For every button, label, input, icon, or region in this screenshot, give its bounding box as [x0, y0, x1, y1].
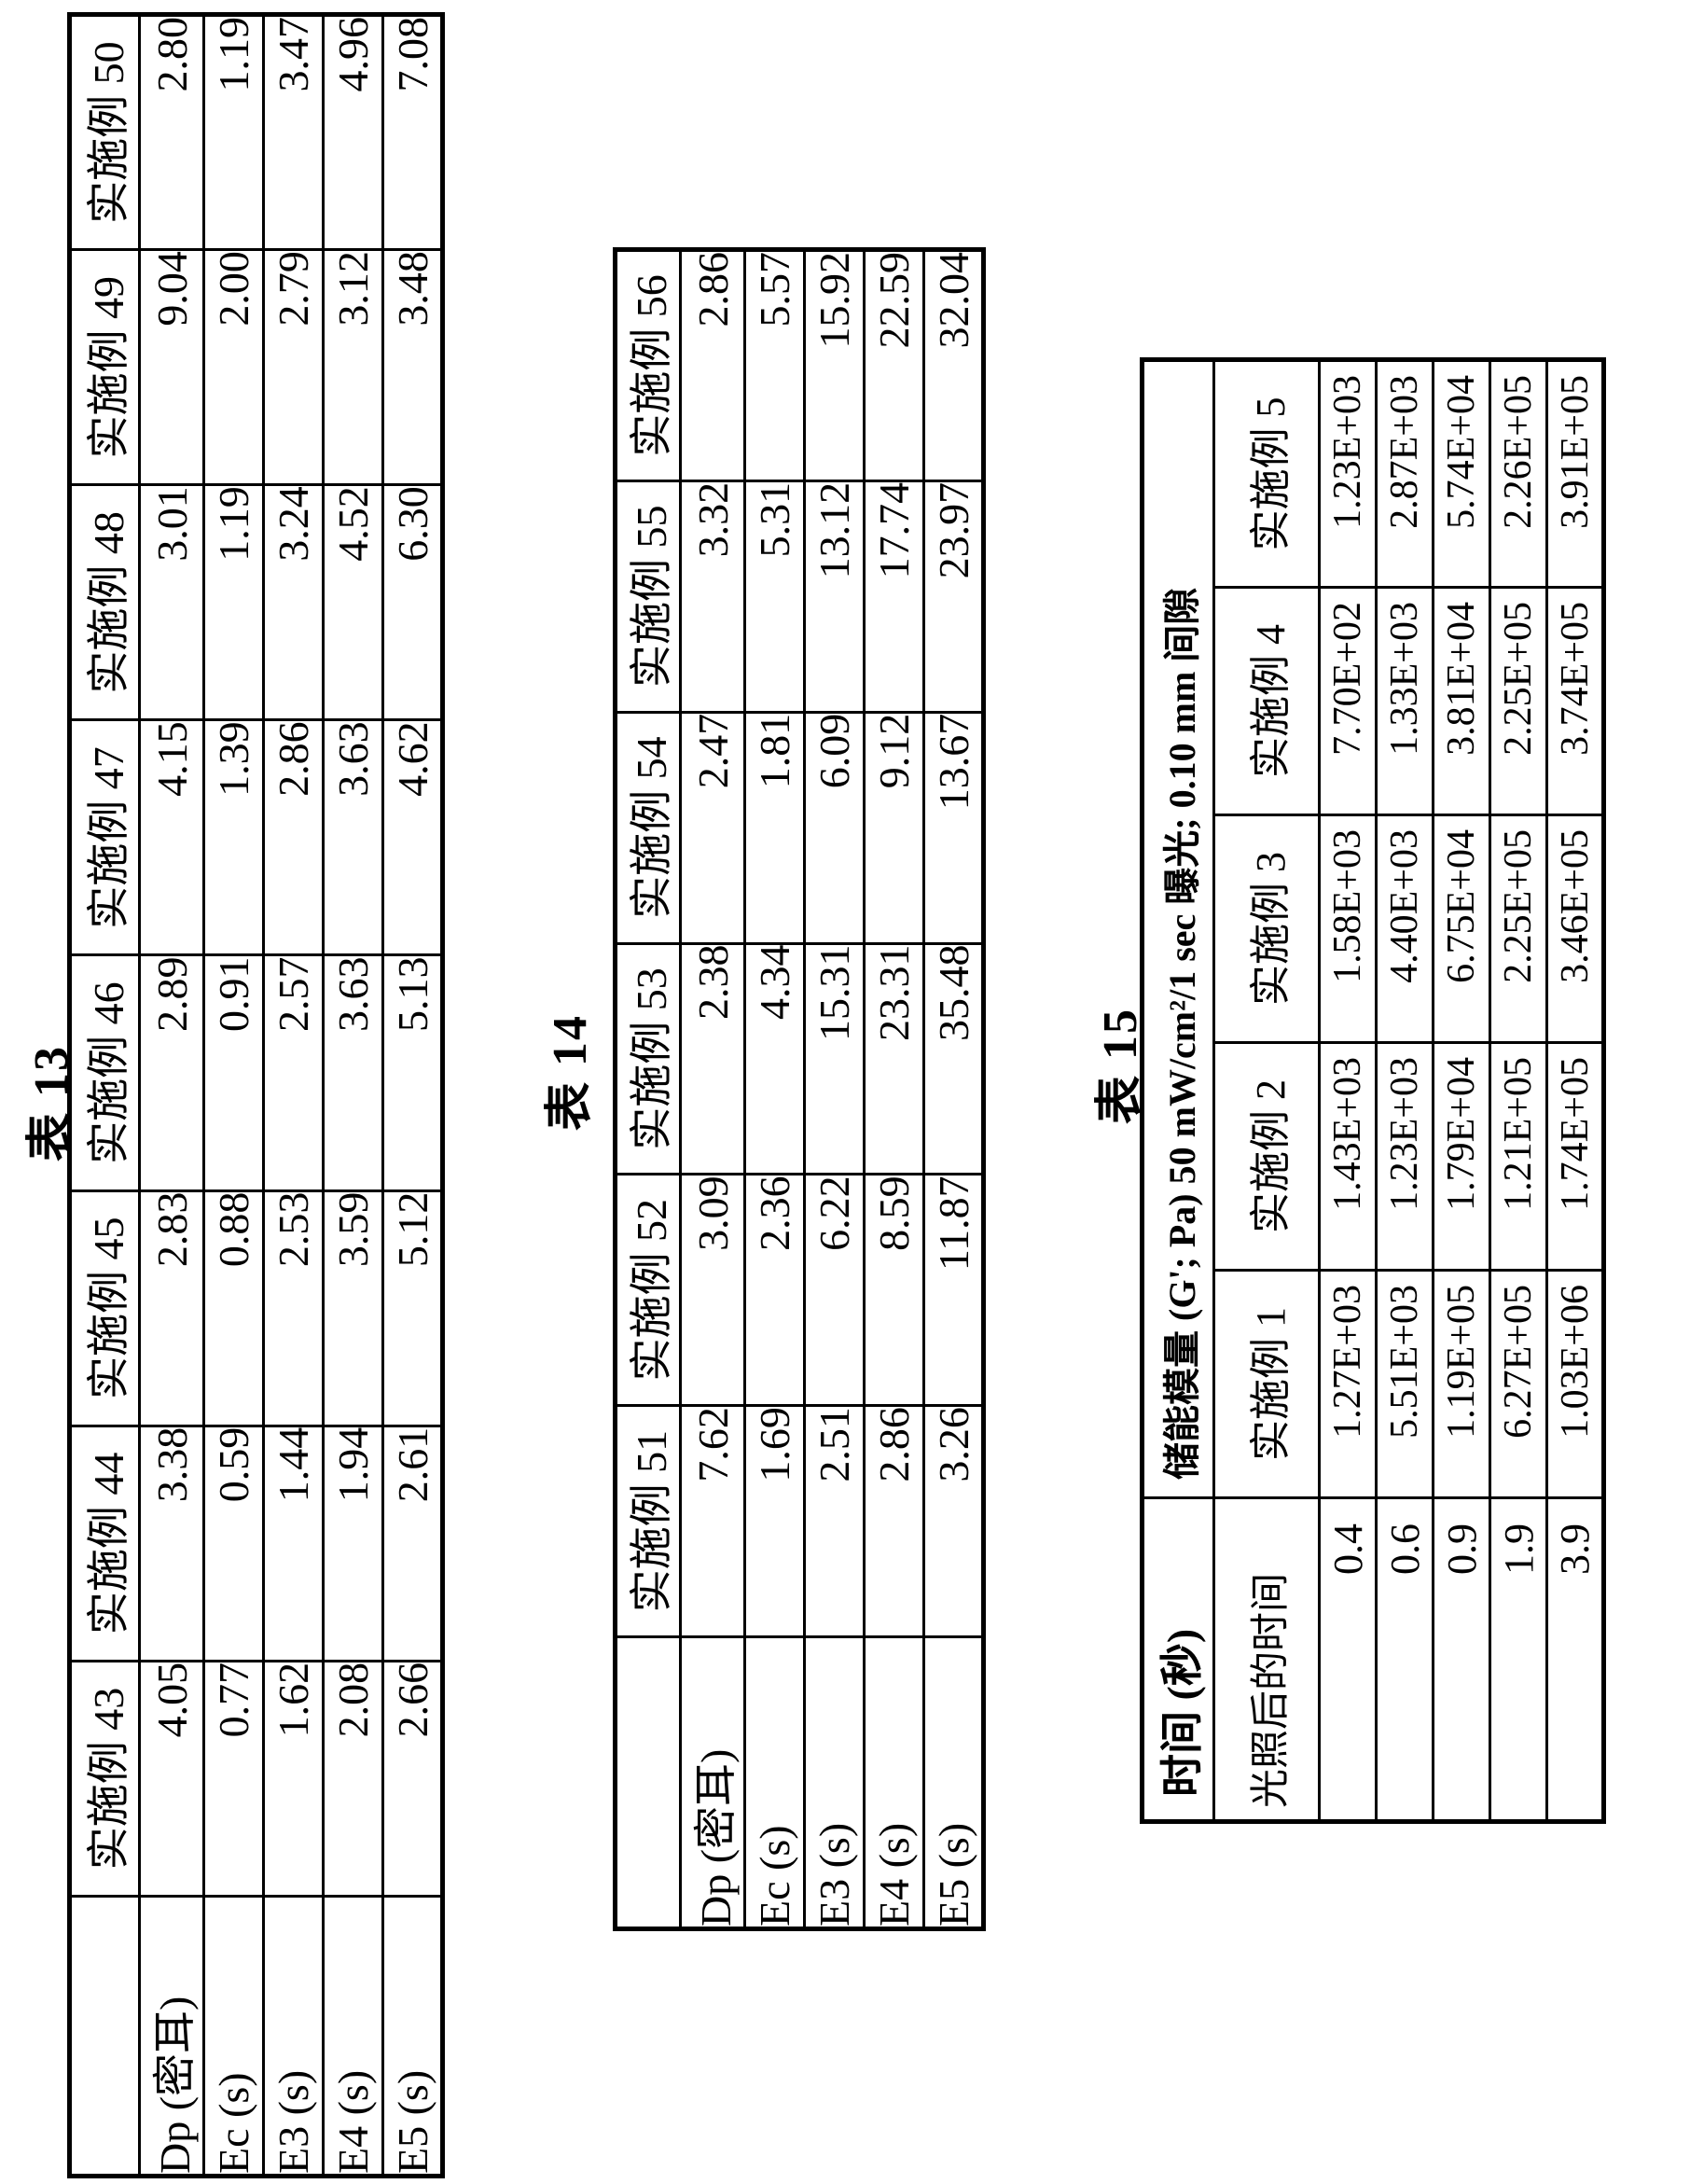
corner-cell — [70, 1897, 140, 2177]
table-15-container: 时间 (秒)储能模量 (G'; Pa) 50 mW/cm²/1 sec 曝光; … — [1140, 357, 1606, 1824]
value-cell: 0.88 — [204, 1190, 264, 1426]
column-header: 实施例 3 — [1214, 815, 1320, 1043]
corner-cell — [616, 1637, 681, 1929]
column-header: 实施例 53 — [616, 943, 681, 1175]
value-cell: 2.25E+05 — [1490, 815, 1547, 1043]
value-cell: 9.12 — [865, 712, 924, 943]
value-cell: 1.33E+03 — [1377, 588, 1434, 815]
value-cell: 3.26 — [924, 1406, 984, 1637]
value-cell: 2.36 — [745, 1175, 805, 1406]
column-header: 实施例 48 — [70, 485, 140, 720]
column-header: 实施例 54 — [616, 712, 681, 943]
value-cell: 2.57 — [264, 955, 324, 1190]
value-cell: 3.74E+05 — [1547, 588, 1604, 815]
value-cell: 23.31 — [865, 943, 924, 1175]
time-value-cell: 0.9 — [1434, 1498, 1490, 1822]
value-cell: 1.23E+03 — [1320, 360, 1377, 588]
value-cell: 2.86 — [865, 1406, 924, 1637]
value-cell: 1.19E+05 — [1434, 1271, 1490, 1498]
value-cell: 7.08 — [383, 15, 443, 250]
value-cell: 2.80 — [140, 15, 204, 250]
value-cell: 0.91 — [204, 955, 264, 1190]
value-cell: 0.77 — [204, 1661, 264, 1896]
storage-modulus-header-cell: 储能模量 (G'; Pa) 50 mW/cm²/1 sec 曝光; 0.10 m… — [1143, 360, 1214, 1498]
value-cell: 4.15 — [140, 720, 204, 955]
value-cell: 4.62 — [383, 720, 443, 955]
value-cell: 1.23E+03 — [1377, 1043, 1434, 1271]
value-cell: 1.58E+03 — [1320, 815, 1377, 1043]
column-header: 实施例 50 — [70, 15, 140, 250]
value-cell: 6.27E+05 — [1490, 1271, 1547, 1498]
value-cell: 6.22 — [805, 1175, 865, 1406]
table-14-container: 实施例 51实施例 52实施例 53实施例 54实施例 55实施例 56Dp (… — [613, 247, 986, 1931]
column-header: 实施例 47 — [70, 720, 140, 955]
value-cell: 5.31 — [745, 480, 805, 712]
value-cell: 3.01 — [140, 485, 204, 720]
row-label: E4 (s) — [324, 1897, 383, 2177]
time-value-cell: 1.9 — [1490, 1498, 1547, 1822]
value-cell: 13.67 — [924, 712, 984, 943]
column-header: 实施例 55 — [616, 480, 681, 712]
column-header: 实施例 44 — [70, 1426, 140, 1661]
row-label: Ec (s) — [745, 1637, 805, 1929]
value-cell: 32.04 — [924, 250, 984, 481]
column-header: 实施例 1 — [1214, 1271, 1320, 1498]
value-cell: 3.59 — [324, 1190, 383, 1426]
value-cell: 1.19 — [204, 15, 264, 250]
column-header: 实施例 46 — [70, 955, 140, 1190]
row-label: E5 (s) — [924, 1637, 984, 1929]
value-cell: 6.75E+04 — [1434, 815, 1490, 1043]
table-13: 实施例 43实施例 44实施例 45实施例 46实施例 47实施例 48实施例 … — [67, 12, 445, 2178]
value-cell: 3.32 — [681, 480, 745, 712]
value-cell: 4.40E+03 — [1377, 815, 1434, 1043]
value-cell: 1.94 — [324, 1426, 383, 1661]
row-label: Dp (密耳) — [681, 1637, 745, 1929]
row-label: E3 (s) — [805, 1637, 865, 1929]
value-cell: 3.48 — [383, 250, 443, 485]
value-cell: 5.12 — [383, 1190, 443, 1426]
value-cell: 23.97 — [924, 480, 984, 712]
time-value-cell: 3.9 — [1547, 1498, 1604, 1822]
value-cell: 17.74 — [865, 480, 924, 712]
value-cell: 2.53 — [264, 1190, 324, 1426]
column-header: 实施例 43 — [70, 1661, 140, 1896]
column-header: 实施例 51 — [616, 1406, 681, 1637]
value-cell: 2.00 — [204, 250, 264, 485]
column-header: 实施例 4 — [1214, 588, 1320, 815]
value-cell: 2.66 — [383, 1661, 443, 1896]
value-cell: 1.62 — [264, 1661, 324, 1896]
value-cell: 1.79E+04 — [1434, 1043, 1490, 1271]
value-cell: 2.89 — [140, 955, 204, 1190]
value-cell: 3.91E+05 — [1547, 360, 1604, 588]
value-cell: 2.26E+05 — [1490, 360, 1547, 588]
value-cell: 6.09 — [805, 712, 865, 943]
value-cell: 2.38 — [681, 943, 745, 1175]
value-cell: 4.52 — [324, 485, 383, 720]
column-header: 实施例 5 — [1214, 360, 1320, 588]
value-cell: 3.38 — [140, 1426, 204, 1661]
row-label: E5 (s) — [383, 1897, 443, 2177]
row-label: Dp (密耳) — [140, 1897, 204, 2177]
time-header-cell: 时间 (秒) — [1143, 1498, 1214, 1822]
value-cell: 1.81 — [745, 712, 805, 943]
value-cell: 2.51 — [805, 1406, 865, 1637]
value-cell: 3.46E+05 — [1547, 815, 1604, 1043]
value-cell: 1.44 — [264, 1426, 324, 1661]
value-cell: 11.87 — [924, 1175, 984, 1406]
value-cell: 3.47 — [264, 15, 324, 250]
column-header: 实施例 49 — [70, 250, 140, 485]
value-cell: 1.43E+03 — [1320, 1043, 1377, 1271]
value-cell: 2.61 — [383, 1426, 443, 1661]
value-cell: 15.92 — [805, 250, 865, 481]
value-cell: 3.24 — [264, 485, 324, 720]
value-cell: 9.04 — [140, 250, 204, 485]
value-cell: 2.86 — [681, 250, 745, 481]
value-cell: 15.31 — [805, 943, 865, 1175]
value-cell: 1.03E+06 — [1547, 1271, 1604, 1498]
value-cell: 2.08 — [324, 1661, 383, 1896]
value-cell: 1.69 — [745, 1406, 805, 1637]
value-cell: 22.59 — [865, 250, 924, 481]
value-cell: 2.83 — [140, 1190, 204, 1426]
value-cell: 1.74E+05 — [1547, 1043, 1604, 1271]
value-cell: 3.09 — [681, 1175, 745, 1406]
value-cell: 2.25E+05 — [1490, 588, 1547, 815]
sub-label-cell: 光照后的时间 — [1214, 1498, 1320, 1822]
column-header: 实施例 45 — [70, 1190, 140, 1426]
column-header: 实施例 52 — [616, 1175, 681, 1406]
column-header: 实施例 2 — [1214, 1043, 1320, 1271]
value-cell: 5.57 — [745, 250, 805, 481]
value-cell: 5.51E+03 — [1377, 1271, 1434, 1498]
value-cell: 35.48 — [924, 943, 984, 1175]
value-cell: 2.87E+03 — [1377, 360, 1434, 588]
value-cell: 1.27E+03 — [1320, 1271, 1377, 1498]
row-label: E4 (s) — [865, 1637, 924, 1929]
time-value-cell: 0.4 — [1320, 1498, 1377, 1822]
value-cell: 8.59 — [865, 1175, 924, 1406]
row-label: E3 (s) — [264, 1897, 324, 2177]
value-cell: 2.86 — [264, 720, 324, 955]
time-value-cell: 0.6 — [1377, 1498, 1434, 1822]
value-cell: 1.21E+05 — [1490, 1043, 1547, 1271]
value-cell: 7.62 — [681, 1406, 745, 1637]
value-cell: 3.63 — [324, 955, 383, 1190]
column-header: 实施例 56 — [616, 250, 681, 481]
table-13-container: 实施例 43实施例 44实施例 45实施例 46实施例 47实施例 48实施例 … — [67, 12, 445, 2178]
value-cell: 5.13 — [383, 955, 443, 1190]
table-14-caption: 表 14 — [530, 1014, 600, 1131]
row-label: Ec (s) — [204, 1897, 264, 2177]
value-cell: 6.30 — [383, 485, 443, 720]
value-cell: 1.19 — [204, 485, 264, 720]
table-14: 实施例 51实施例 52实施例 53实施例 54实施例 55实施例 56Dp (… — [613, 247, 986, 1931]
value-cell: 13.12 — [805, 480, 865, 712]
value-cell: 1.39 — [204, 720, 264, 955]
value-cell: 7.70E+02 — [1320, 588, 1377, 815]
value-cell: 3.63 — [324, 720, 383, 955]
value-cell: 0.59 — [204, 1426, 264, 1661]
value-cell: 3.81E+04 — [1434, 588, 1490, 815]
table-15: 时间 (秒)储能模量 (G'; Pa) 50 mW/cm²/1 sec 曝光; … — [1140, 357, 1606, 1824]
value-cell: 2.79 — [264, 250, 324, 485]
value-cell: 4.05 — [140, 1661, 204, 1896]
value-cell: 3.12 — [324, 250, 383, 485]
value-cell: 4.34 — [745, 943, 805, 1175]
value-cell: 5.74E+04 — [1434, 360, 1490, 588]
value-cell: 2.47 — [681, 712, 745, 943]
value-cell: 4.96 — [324, 15, 383, 250]
